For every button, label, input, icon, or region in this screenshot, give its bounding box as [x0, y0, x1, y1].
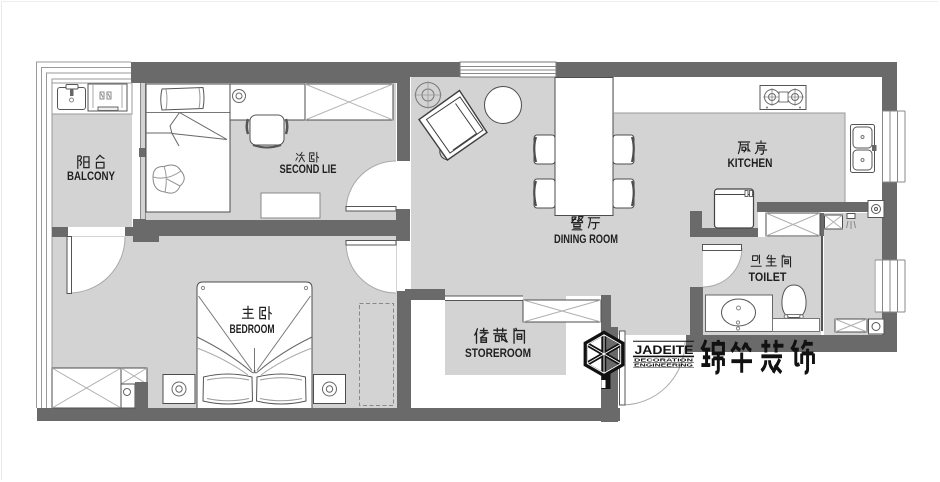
svg-text:TOILET: TOILET	[749, 270, 788, 284]
svg-text:BALCONY: BALCONY	[67, 169, 115, 183]
svg-text:STOREROOM: STOREROOM	[465, 346, 531, 360]
svg-text:BEDROOM: BEDROOM	[230, 322, 275, 336]
svg-text:ENGINEERING: ENGINEERING	[634, 362, 694, 367]
svg-text:KITCHEN: KITCHEN	[728, 156, 773, 170]
svg-text:DINING ROOM: DINING ROOM	[554, 232, 618, 246]
svg-text:SECOND LIE: SECOND LIE	[280, 162, 337, 176]
svg-text:JADEITE: JADEITE	[635, 345, 694, 357]
